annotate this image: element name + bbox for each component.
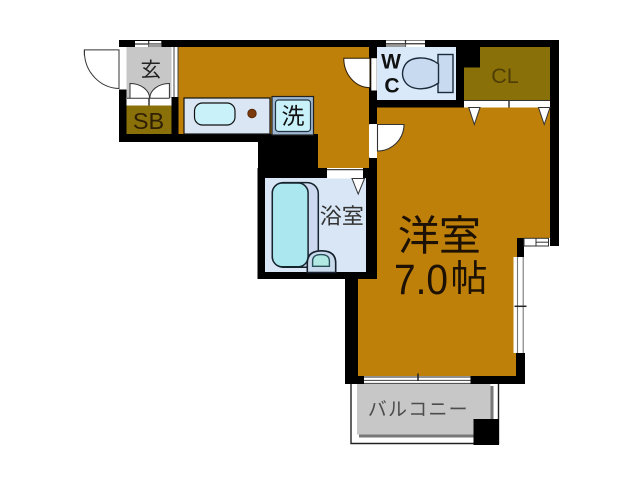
svg-text:W: W	[381, 51, 401, 74]
svg-text:C: C	[384, 75, 399, 98]
svg-text:CL: CL	[491, 64, 519, 88]
svg-text:7.0: 7.0	[394, 256, 448, 304]
svg-text:SB: SB	[133, 108, 164, 134]
